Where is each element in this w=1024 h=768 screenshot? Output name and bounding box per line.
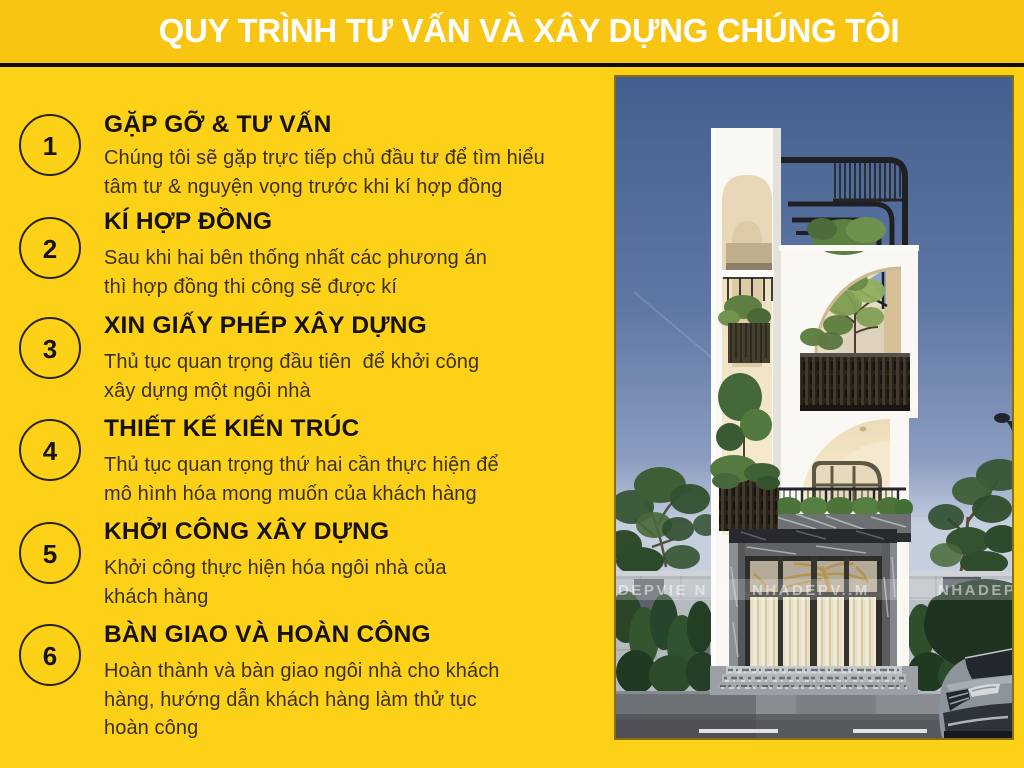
- svg-text:NHADEPV..M: NHADEPV..M: [752, 582, 870, 599]
- svg-text:DEPVIE N: DEPVIE N: [618, 582, 708, 599]
- svg-text:NHADEP.UE: NHADEP.UE: [938, 582, 1012, 599]
